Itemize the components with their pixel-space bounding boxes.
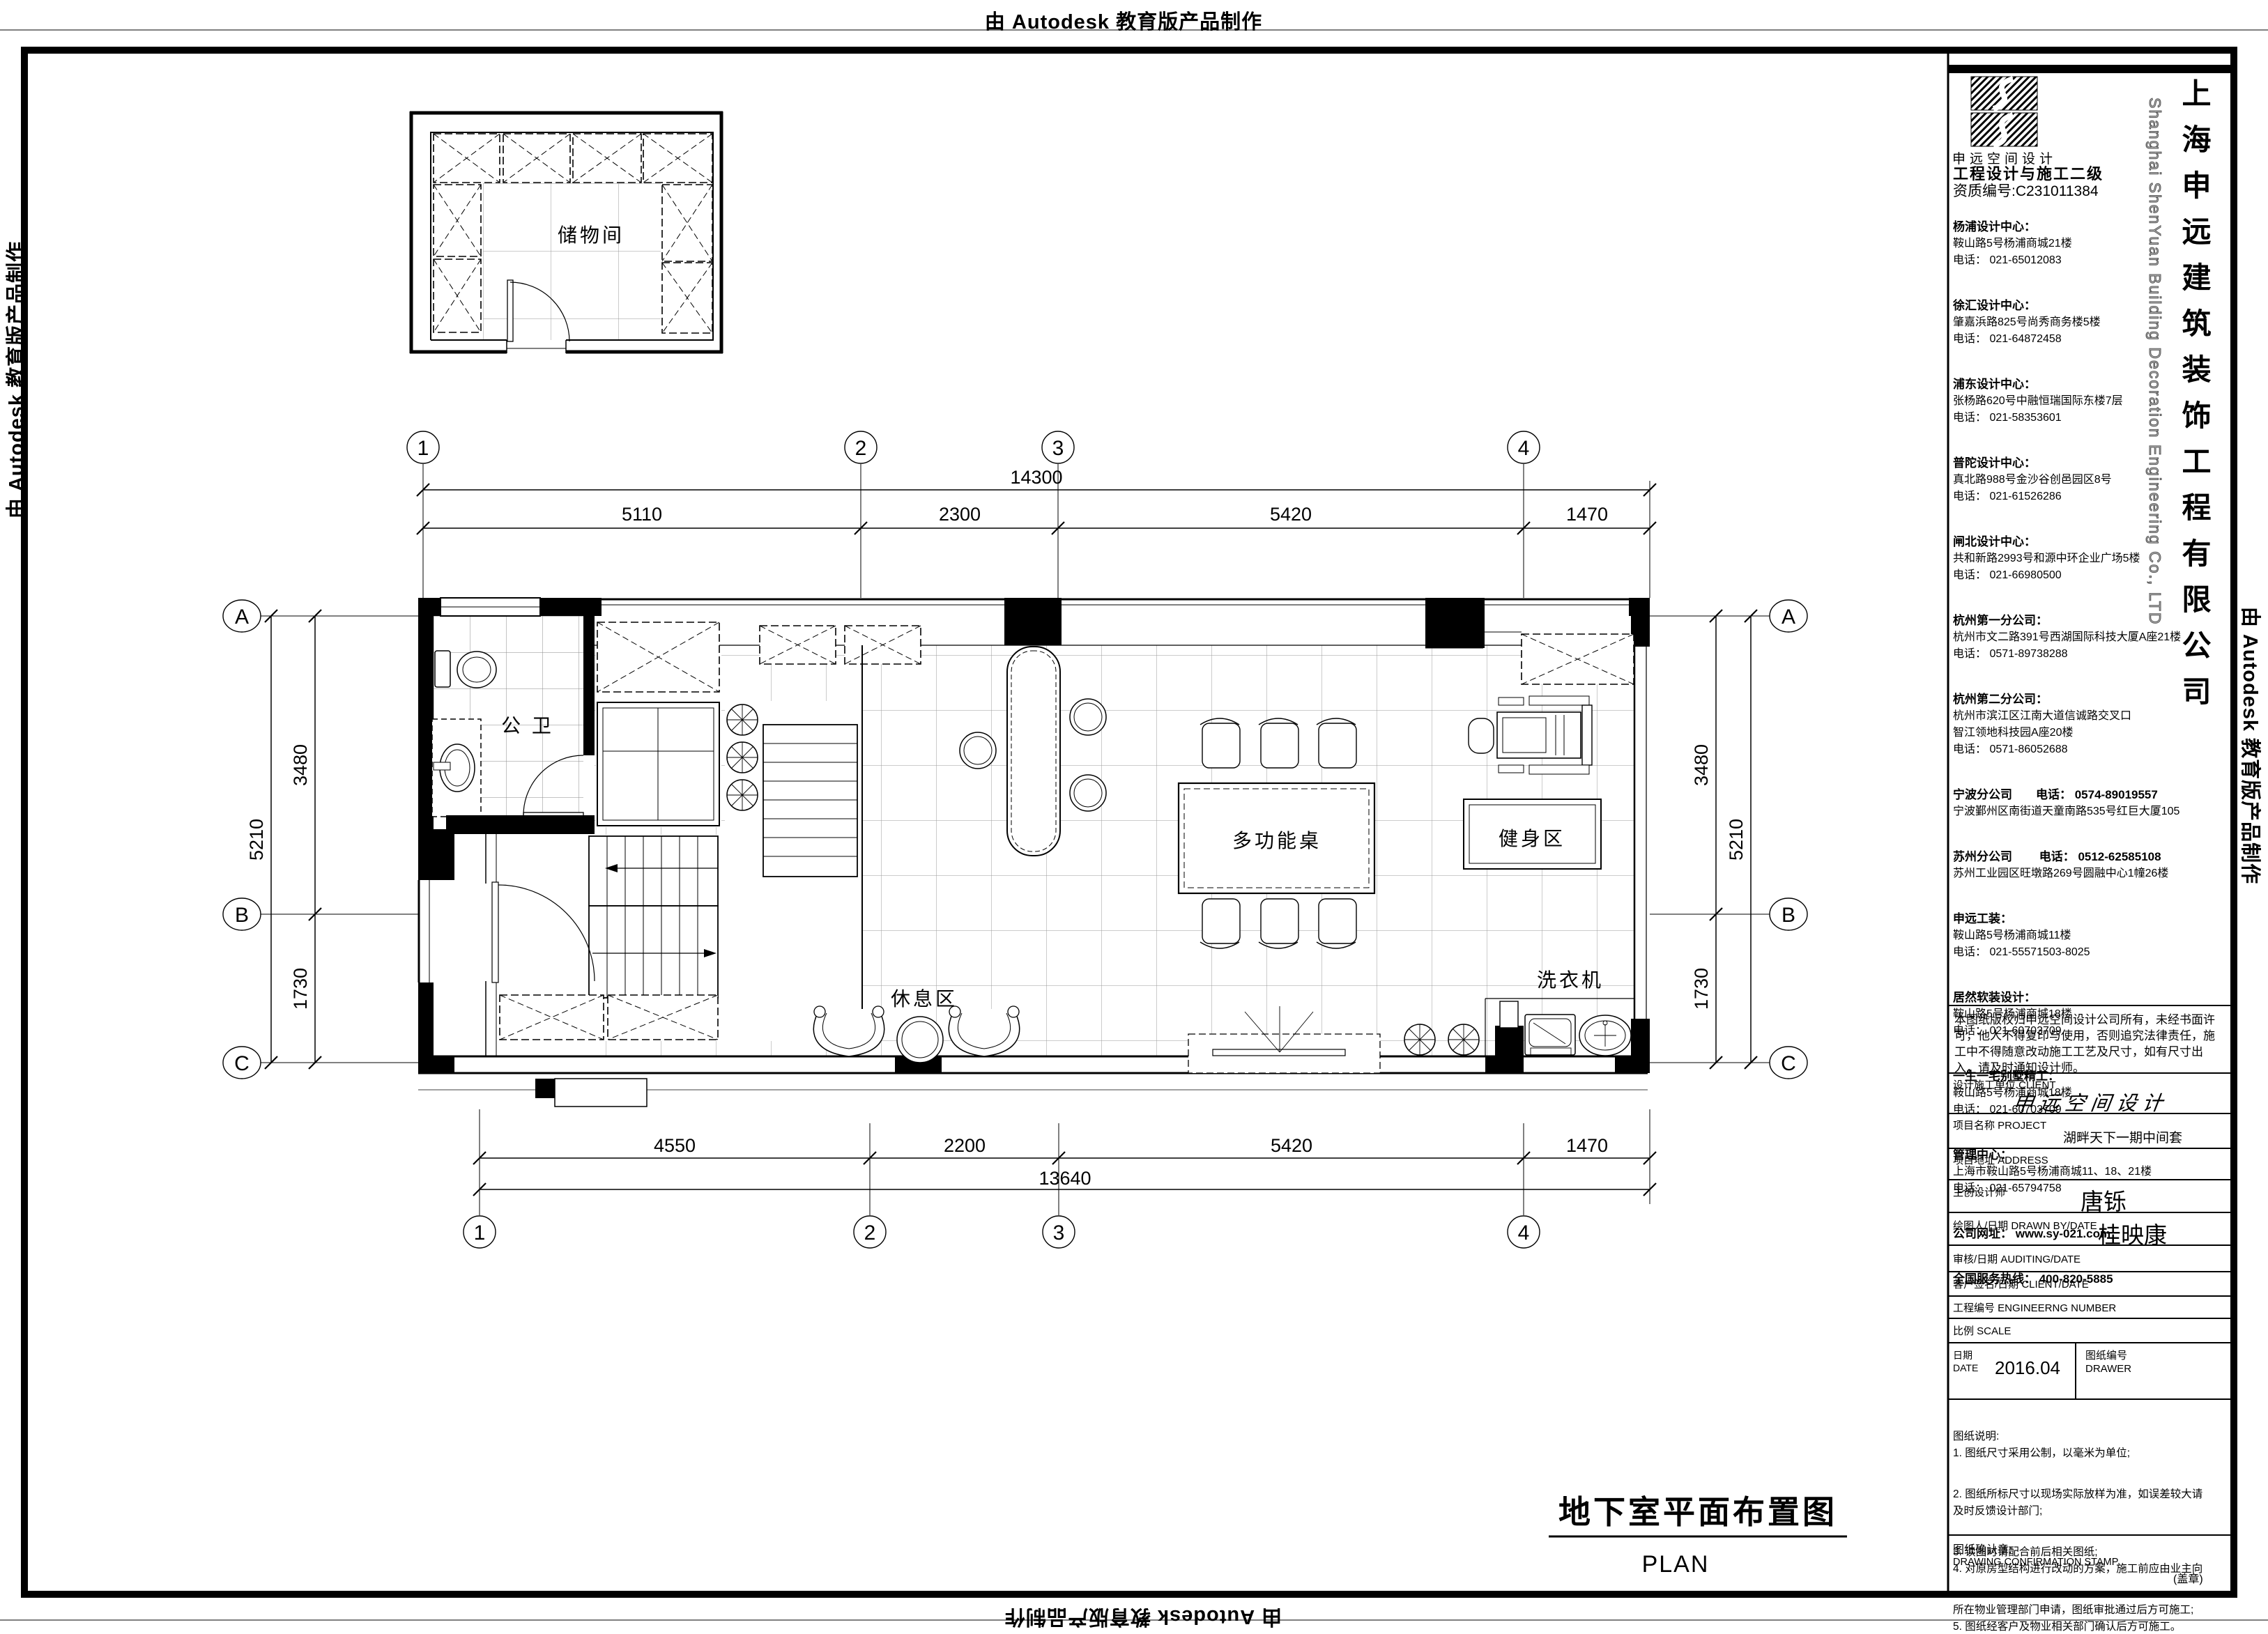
vanity-sink [432, 719, 481, 817]
wall-cabinet [1522, 634, 1634, 684]
storage-shelf-unit [573, 134, 641, 183]
understair-cabinet [608, 995, 718, 1040]
grid-bubble-label: B [235, 904, 249, 927]
watermark-bottom: 由 Autodesk 教育版产品制作 [948, 1604, 1338, 1633]
dim: 2300 [939, 504, 981, 525]
bathroom-label: 公 卫 [501, 715, 554, 737]
toilet [435, 651, 496, 688]
wall-cabinet [760, 626, 836, 664]
dim: 3480 [290, 744, 311, 786]
copyright-note: 本图纸版权归申远空间设计公司所有，未经书面许可，他人不得复印与使用，否则追究法律… [1954, 1012, 2225, 1076]
closet-unit [597, 622, 719, 692]
lounge-chair [813, 1006, 884, 1056]
lounge-chair [949, 1006, 1019, 1056]
gym-label: 健身区 [1499, 828, 1565, 849]
gym-zone: 健身区 [1464, 799, 1601, 869]
grid-bubble-label: 1 [417, 437, 429, 460]
door-leaf [1500, 1001, 1518, 1028]
dim-top-overall: 14300 [1010, 467, 1062, 488]
dim: 1730 [1691, 968, 1712, 1010]
office-entry: 宁波分公司 电话： 0574-89019557宁波鄞州区南街道天童南路535号红… [1953, 787, 2190, 820]
client-sign-label: 客户签名/日期 CLIENT/DATE [1953, 1277, 2089, 1291]
plant-icon [727, 742, 758, 773]
project-label: 项目名称 PROJECT [1953, 1118, 2046, 1132]
dining-chair [1200, 899, 1240, 948]
drawing-sheet: 储物间 [0, 0, 2268, 1634]
entry-step-column [535, 1079, 555, 1098]
floor-plan: 公 卫 [418, 598, 1650, 1107]
drawing-notes: 图纸说明:1. 图纸尺寸采用公制，以毫米为单位; 2. 图纸所标尺寸以现场实际放… [1953, 1403, 2226, 1634]
dining-chair [1259, 899, 1298, 948]
grid-bubble-label: C [1781, 1052, 1796, 1075]
grid-bubble-label: 1 [474, 1221, 486, 1244]
designer-label: 主创设计师 [1953, 1185, 2005, 1199]
designer-name: 唐铄 [2081, 1183, 2127, 1217]
stamp-seal: (盖章) [2173, 1569, 2203, 1586]
grid-bubble-label: A [235, 606, 249, 629]
engineering-number-label: 工程编号 ENGINEERNG NUMBER [1953, 1300, 2116, 1315]
laundry-basin [1579, 1015, 1631, 1056]
plan-title-cn: 地下室平面布置图 [1558, 1494, 1837, 1530]
column [1495, 1026, 1524, 1056]
drawnby-name: 桂映康 [2098, 1217, 2167, 1250]
dim: 5420 [1271, 1135, 1312, 1156]
cad-linework: 储物间 [0, 0, 2268, 1634]
project-name: 湖畔天下一期中间套 [2063, 1127, 2182, 1146]
watermark-top: 由 Autodesk 教育版产品制作 [928, 6, 1319, 35]
grid-bubble-label: 3 [1053, 1221, 1065, 1244]
company-name-english: Shanghai ShenYuan Building Decoration En… [2145, 98, 2164, 711]
platform-bed [597, 702, 719, 826]
storage-shelf-unit [503, 134, 570, 183]
bar-counter [1007, 647, 1060, 856]
storage-room-detail: 储物间 [410, 111, 723, 353]
company-logo [1971, 77, 2037, 146]
stamp-label-en: DRAWING CONFIRMATION STAMP [1953, 1557, 2118, 1568]
storage-shelf-unit [662, 263, 712, 333]
office-entry: 申远工装：鞍山路5号杨浦商城11楼电话： 021-55571503-8025 [1953, 911, 2190, 961]
dim: 5210 [246, 819, 267, 861]
dim: 5110 [622, 504, 662, 525]
drawnby-label: 绘图人/日期 DRAWN BY/DATE [1953, 1218, 2097, 1233]
date-value: 2016.04 [1995, 1357, 2060, 1379]
column [1004, 598, 1062, 645]
wall-cabinet [845, 626, 921, 664]
watermark-left: 由 Autodesk 教育版产品制作 [0, 185, 22, 575]
sheet-title: 地下室平面布置图 PLAN [1549, 1494, 1847, 1578]
dining-chair [1317, 899, 1356, 948]
storage-room-label: 储物间 [558, 224, 625, 246]
multifunction-table: 多功能桌 [1179, 783, 1374, 893]
grid-bubble-label: C [234, 1052, 250, 1075]
dim: 5210 [1726, 819, 1747, 861]
grid-bubble-label: 4 [1518, 437, 1530, 460]
dining-chair [1200, 718, 1240, 768]
dim: 1470 [1566, 504, 1608, 525]
dining-chair [1317, 718, 1356, 768]
client-signature: 申远空间设计 [1984, 1087, 2198, 1116]
washer-label: 洗衣机 [1537, 969, 1604, 991]
bottom-wall [418, 1056, 1650, 1107]
grid-bubble-label: 2 [855, 437, 867, 460]
address-label: 项目地址 ADDRESS [1953, 1153, 2048, 1167]
dim: 5420 [1270, 504, 1312, 525]
stamp-label-cn: 图纸确认章: [1953, 1540, 2012, 1557]
dim-bottom-overall: 13640 [1039, 1168, 1091, 1189]
storage-shelf-unit [434, 134, 500, 183]
grid-bubble-label: A [1782, 606, 1795, 629]
side-table [897, 1017, 943, 1063]
plant-icon [1448, 1024, 1479, 1055]
stool [1070, 699, 1106, 735]
dining-chair [1259, 718, 1298, 768]
dim: 4550 [654, 1135, 696, 1156]
storage-shelf-unit [434, 259, 481, 332]
stool [1070, 775, 1106, 811]
washing-machine [1525, 1015, 1575, 1055]
grid-bubble-label: 3 [1052, 437, 1064, 460]
audit-label: 审核/日期 AUDITING/DATE [1953, 1251, 2081, 1266]
grid-bubble-label: B [1782, 904, 1795, 927]
stool [960, 732, 996, 769]
plan-title-en: PLAN [1642, 1551, 1710, 1578]
bathroom-wall [583, 616, 595, 755]
sheet-number-label: 图纸编号DRAWER [2085, 1349, 2131, 1375]
entry-step [555, 1079, 647, 1107]
office-entry: 苏州分公司 电话： 0512-62585108苏州工业园区旺墩路269号圆融中心… [1953, 849, 2190, 882]
dim: 1730 [290, 968, 311, 1010]
storage-shelf-unit [662, 185, 712, 261]
plant-icon [1404, 1024, 1435, 1055]
plant-icon [727, 704, 758, 735]
scale-label: 比例 SCALE [1953, 1323, 2011, 1338]
storage-shelf-unit [643, 134, 712, 183]
table-label: 多功能桌 [1232, 830, 1321, 851]
watermark-right: 由 Autodesk 教育版产品制作 [2244, 550, 2267, 941]
dim: 1470 [1566, 1135, 1608, 1156]
understair-cabinet [500, 995, 604, 1040]
date-label: 日期DATE [1953, 1349, 1978, 1374]
grid-bubble-label: 2 [864, 1221, 876, 1244]
dim: 3480 [1691, 744, 1712, 786]
storage-shelf-unit [434, 185, 481, 256]
company-name-vertical: 上海申远建筑装饰工程有限公司 [2173, 78, 2216, 817]
grid-bubble-label: 4 [1518, 1221, 1530, 1244]
rest-label: 休息区 [891, 988, 958, 1010]
column [1425, 598, 1485, 648]
plant-icon [727, 780, 758, 810]
dim: 2200 [944, 1135, 986, 1156]
